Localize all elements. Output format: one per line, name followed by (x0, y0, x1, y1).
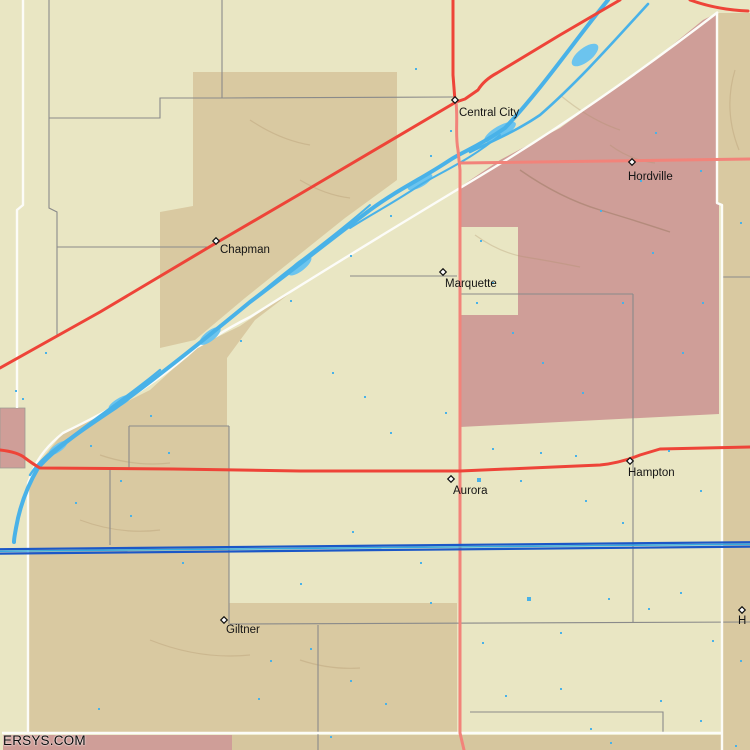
pond (482, 642, 484, 644)
town-label-h-partial: H (738, 615, 746, 627)
pond (735, 745, 737, 747)
pond (700, 170, 702, 172)
pond (75, 502, 77, 504)
pond (608, 598, 610, 600)
town-h-partial: H (738, 607, 746, 627)
pond (415, 68, 417, 70)
pond (420, 562, 422, 564)
pond (700, 490, 702, 492)
town-label-marquette: Marquette (445, 278, 497, 290)
pond (610, 742, 612, 744)
pond (740, 222, 742, 224)
pond (492, 448, 494, 450)
pond (476, 302, 478, 304)
pond (270, 660, 272, 662)
pond (15, 390, 17, 392)
pond (310, 648, 312, 650)
pond (450, 130, 452, 132)
pond (182, 562, 184, 564)
pond (560, 632, 562, 634)
pond (390, 432, 392, 434)
map-image: Central City Hordville Chapman Marquette… (0, 0, 750, 750)
pond (600, 210, 602, 212)
pond (240, 340, 242, 342)
pond (622, 302, 624, 304)
pond (660, 700, 662, 702)
pond (385, 703, 387, 705)
pond (430, 155, 432, 157)
region-bottom-strip-tan (232, 735, 722, 750)
pond (590, 728, 592, 730)
pond (582, 392, 584, 394)
map-canvas: Central City Hordville Chapman Marquette… (0, 0, 750, 750)
pond (540, 452, 542, 454)
pond (22, 398, 24, 400)
pond (740, 660, 742, 662)
pond (290, 300, 292, 302)
pond (712, 640, 714, 642)
town-label-hampton: Hampton (628, 467, 675, 479)
pond (150, 415, 152, 417)
pond (430, 602, 432, 604)
pond (120, 480, 122, 482)
town-label-hordville: Hordville (628, 171, 673, 183)
pond (648, 608, 650, 610)
pond (700, 720, 702, 722)
pond (527, 597, 531, 601)
pond (364, 396, 366, 398)
pond (300, 583, 302, 585)
pond (350, 680, 352, 682)
pond (352, 531, 354, 533)
town-label-central-city: Central City (459, 107, 519, 119)
pond (702, 302, 704, 304)
region-west-pink (0, 408, 25, 468)
pond (560, 688, 562, 690)
pond (45, 352, 47, 354)
pond (168, 452, 170, 454)
pond (585, 500, 587, 502)
pond (512, 332, 514, 334)
pond (542, 362, 544, 364)
pond (655, 132, 657, 134)
pond (477, 478, 481, 482)
pond (98, 708, 100, 710)
pond (258, 698, 260, 700)
pond (668, 450, 670, 452)
pond (505, 695, 507, 697)
pond (332, 372, 334, 374)
pond (130, 515, 132, 517)
pond (330, 736, 332, 738)
pond (480, 240, 482, 242)
town-label-aurora: Aurora (453, 485, 488, 497)
town-label-chapman: Chapman (220, 244, 270, 256)
pond (575, 455, 577, 457)
pond (652, 252, 654, 254)
pond (682, 352, 684, 354)
town-label-giltner: Giltner (226, 624, 260, 636)
pond (445, 412, 447, 414)
pond (390, 215, 392, 217)
pond (680, 592, 682, 594)
pond (622, 522, 624, 524)
pond (350, 255, 352, 257)
watermark: ERSYS.COM (3, 733, 86, 748)
region-pink-cutout (460, 227, 518, 315)
pond (520, 480, 522, 482)
pond (90, 445, 92, 447)
